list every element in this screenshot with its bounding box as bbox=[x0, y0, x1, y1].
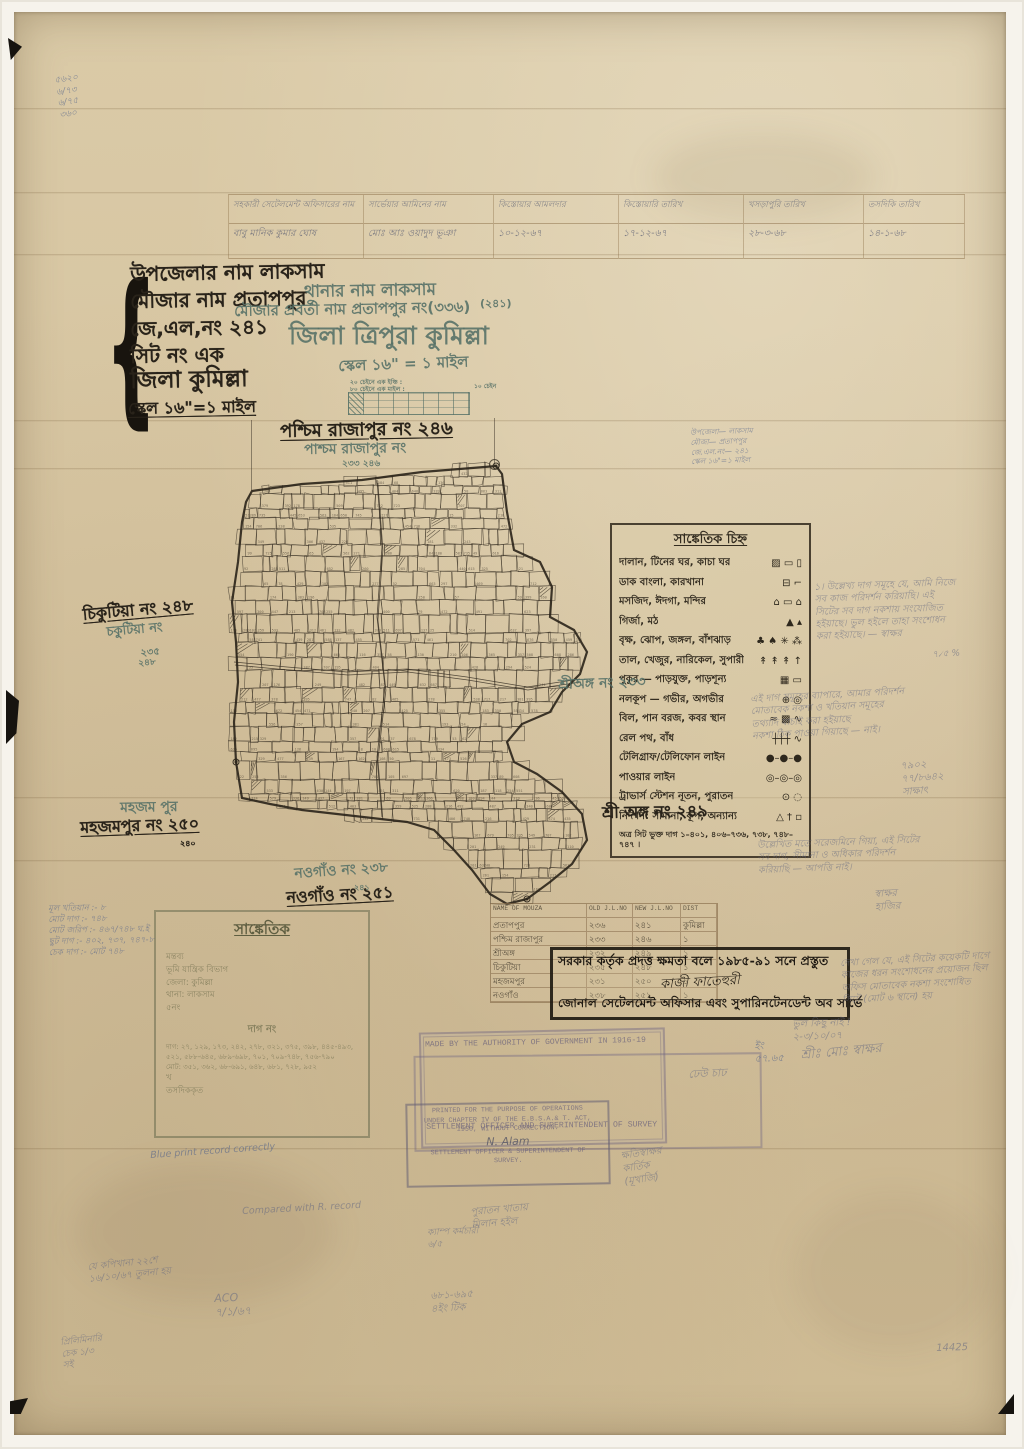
reference-box-dag-numbers: মোট: ৩৫১, ৩৬২, ৬৮-৬৯১, ৬৪৮, ৬৮১, ৭২৮, ৯৫… bbox=[166, 1062, 358, 1072]
legend-row-symbol-icon: ↟ ↟ ↟ ↑ bbox=[759, 656, 802, 667]
pencil-note-line: ৭৴৫ % bbox=[932, 649, 960, 662]
legend-row-symbol-icon: ♣ ♠ ✳ ⁂ bbox=[756, 636, 802, 647]
mouza-table-header: NAME OF MOUZA bbox=[491, 904, 587, 918]
mouza-table-cell: ২৩৬ bbox=[587, 918, 633, 932]
legend-row-symbol-icon: ◎–◎–◎ bbox=[766, 773, 802, 784]
pencil-note-line: ইং bbox=[754, 1039, 784, 1053]
reference-box-line: জেলা: কুমিল্লা bbox=[166, 977, 358, 990]
legend-row-label: তাল, খেজুর, নারিকেল, সুপারী bbox=[619, 653, 744, 670]
mouza-table-header: OLD J.L.NO bbox=[587, 904, 633, 918]
pencil-note: ইং৫৭.৬৫ bbox=[754, 1039, 784, 1066]
pencil-note: ঢেউ চাঢ bbox=[688, 1066, 727, 1082]
mouza-table-cell: ১ bbox=[681, 932, 717, 946]
legend-row-label: দালান, টিনের ঘর, কাচা ঘর bbox=[619, 555, 730, 572]
survey-record-table: সহকারী সেটেলমেন্ট অফিসারের নামসার্ভেয়ার… bbox=[228, 194, 965, 259]
fold-crease bbox=[14, 108, 1006, 110]
pencil-note: স্বাক্ষরহাজির bbox=[874, 887, 901, 914]
map-label: উপজেলার নাম লাকসাম bbox=[130, 260, 325, 285]
legend-row-label: গির্জা, মঠ bbox=[619, 614, 658, 631]
pencil-note-line: ঢেউ চাঢ bbox=[688, 1066, 727, 1082]
scan-background: সহকারী সেটেলমেন্ট অফিসারের নামসার্ভেয়ার… bbox=[2, 2, 1022, 1447]
mouza-table-header: NEW J.L.NO bbox=[633, 904, 681, 918]
survey-table-value: ১৭-১২-৬৭ bbox=[619, 224, 744, 259]
reference-box-dag-label: দাগ নং bbox=[166, 1022, 358, 1039]
legend-row-label: পাওয়ার লাইন bbox=[619, 770, 675, 787]
pencil-note-line: ৪ইং টিক bbox=[431, 1301, 474, 1316]
legend-row: ডাক বাংলা, কারখানা⊟ ⌐ bbox=[619, 575, 802, 592]
legend-row-symbol-icon: ●–●–● bbox=[766, 753, 802, 764]
reference-box-title: সাঙ্কেতিক bbox=[166, 918, 358, 943]
pencil-note-line: ৫৭.৬৫ bbox=[754, 1052, 784, 1066]
legend-row-label: বৃক্ষ, ঝোপ, জঙ্গল, বাঁশঝাড় bbox=[619, 633, 731, 650]
scale-bar bbox=[348, 392, 470, 415]
mouza-table-cell: ২৪৬ bbox=[633, 932, 681, 946]
survey-table-value: মোঃ আঃ ওয়াদুদ ভূঞা bbox=[364, 224, 494, 259]
survey-table-value: ২৮-৩-৬৮ bbox=[744, 224, 864, 259]
pencil-note-line: ৬৮১-৬৯৫ bbox=[430, 1288, 473, 1303]
map-label: মৌজার প্রবর্তী নাম প্রতাপপুর নং(৩৩৬) bbox=[234, 299, 470, 320]
fold-crease bbox=[14, 420, 1006, 422]
mouza-table-cell: ২৪১ bbox=[633, 918, 681, 932]
pencil-note: মূল খতিয়ান :- ৮মোট দাগ :- ৭৪৮মোট জরিপ :… bbox=[48, 902, 154, 959]
reference-box-line: মন্তব্য bbox=[166, 951, 358, 964]
map-label: স্কেল ১৬"=১ মাইল bbox=[128, 398, 256, 418]
legend-row-symbol-icon: △ † ▫ bbox=[776, 812, 802, 823]
pencil-note: এই দাগ সমূহের ব্যাপারে, আমার পরিদর্শনমোত… bbox=[750, 686, 906, 743]
survey-table-header: কিস্তোয়ারি তারিখ bbox=[619, 195, 744, 224]
reference-box-line: তসদিককৃত bbox=[166, 1085, 358, 1098]
survey-table-header: কিস্তোয়ার আমলদার bbox=[494, 195, 619, 224]
legend-row: গির্জা, মঠ▲ ▴ bbox=[619, 614, 802, 631]
map-label: পাশ্চম রাজাপুর নং bbox=[304, 441, 406, 458]
pencil-note-line: ২-৩/১০/০৭ bbox=[792, 1029, 851, 1044]
reprint-stamp: PRINTED FOR THE PURPOSE OF OPERATIONSUND… bbox=[405, 1100, 610, 1188]
pencil-note: ক্ষতিস্বাক্ষরকার্তিক(মূখার্জি) bbox=[620, 1144, 666, 1188]
map-label: ২৩৩ ২৪৬ bbox=[342, 460, 380, 470]
reference-box-body: মন্তব্যভূমি যান্ত্রিক বিভাগজেলা: কুমিল্ল… bbox=[166, 951, 358, 1098]
legend-row-symbol-icon: ⌂ ▭ ⌂ bbox=[773, 597, 802, 608]
reference-box-line: খ bbox=[166, 1072, 358, 1085]
legend-row: দালান, টিনের ঘর, কাচা ঘর▨ ▭ ▯ bbox=[619, 555, 802, 572]
legend-row: মসজিদ, ঈদগা, মন্দির⌂ ▭ ⌂ bbox=[619, 594, 802, 611]
mouza-table-header: DIST bbox=[681, 904, 717, 918]
pencil-note: ৭৴৫ % bbox=[932, 649, 960, 662]
legend-row-symbol-icon: ⊟ ⌐ bbox=[782, 578, 802, 589]
mouza-table-cell: কুমিল্লা bbox=[681, 918, 717, 932]
legend-row-symbol-icon: ▲ ▴ bbox=[786, 617, 802, 628]
legend-row-label: মসজিদ, ঈদগা, মন্দির bbox=[619, 594, 706, 611]
reference-box: সাঙ্কেতিক মন্তব্যভূমি যান্ত্রিক বিভাগজেল… bbox=[154, 910, 370, 1138]
map-label: জিলা কুমিল্লা bbox=[130, 367, 248, 394]
pencil-note: উপজেলা— লাকসামমৌজা— প্রতাপপুরজে.এল.নং— ২… bbox=[690, 426, 754, 467]
legend-title: সাঙ্কেতিক চিহ্ন bbox=[619, 530, 802, 551]
legend-rows: দালান, টিনের ঘর, কাচা ঘর▨ ▭ ▯ডাক বাংলা, … bbox=[619, 555, 802, 826]
pencil-note: ভুল কিছু নাই !২-৩/১০/০৭ bbox=[792, 1016, 851, 1044]
legend-row: বৃক্ষ, ঝোপ, জঙ্গল, বাঁশঝাড়♣ ♠ ✳ ⁂ bbox=[619, 633, 802, 650]
map-label: পশ্চিম রাজাপুর নং ২৪৬ bbox=[280, 419, 453, 442]
pencil-note: উল্লেখিত মতে সরেজমিনে গিয়া, এই সিটেরসব … bbox=[757, 834, 921, 877]
legend-row: টেলিগ্রাফ/টেলিফোন লাইন●–●–● bbox=[619, 750, 802, 767]
legend-row: পাওয়ার লাইন◎–◎–◎ bbox=[619, 770, 802, 787]
mouza-table-cell: পশ্চিম রাজাপুর bbox=[491, 932, 587, 946]
mouza-table-cell: ২৩৩ bbox=[587, 932, 633, 946]
pencil-note: পুরাতন খাতায়মিলান হইল bbox=[470, 1201, 530, 1232]
survey-table-value: বাবু মানিক কুমার ঘোষ bbox=[229, 224, 364, 259]
legend-row: পুকুর — পাড়যুক্ত, পাড়শূন্য▦ ▭ bbox=[619, 672, 802, 689]
pencil-note-line: হাজির bbox=[875, 900, 901, 914]
legend-row: তাল, খেজুর, নারিকেল, সুপারী↟ ↟ ↟ ↑ bbox=[619, 653, 802, 670]
map-label: ২৪০ bbox=[180, 840, 196, 849]
reference-box-line: ভূমি যান্ত্রিক বিভাগ bbox=[166, 964, 358, 977]
map-label: শ্রী অঙ্গ নং ২৪৯ bbox=[602, 802, 708, 821]
cadastral-map-canvas bbox=[227, 457, 607, 912]
survey-table-header: সার্ভেয়ার আমিনের নাম bbox=[364, 195, 494, 224]
pencil-note-line: চেক দাগ :- মোট ৭৪৮ bbox=[49, 946, 155, 959]
pencil-note: ১। উল্লেখ্য দাগ সমূহে যে, আমি নিজেসব কাজ… bbox=[814, 577, 957, 644]
legend-row-label: ডাক বাংলা, কারখানা bbox=[619, 575, 704, 592]
legend-row-label: টেলিগ্রাফ/টেলিফোন লাইন bbox=[619, 750, 725, 767]
map-label: ২৪৮ bbox=[138, 658, 156, 669]
mouza-table-cell: প্রতাপপুর bbox=[491, 918, 587, 932]
map-label: ১০ চেইন bbox=[474, 384, 496, 391]
pencil-note: 14425 bbox=[936, 1341, 968, 1355]
survey-table-header: খসড়াপুরি তারিখ bbox=[744, 195, 864, 224]
survey-table-header: তসদিকি তারিখ bbox=[864, 195, 965, 224]
map-label: জিলা ত্রিপুরা কুমিল্লা bbox=[289, 322, 489, 350]
pencil-note-line: ভুল কিছু নাই ! bbox=[792, 1016, 851, 1031]
survey-table-value: ১০-১২-৬৭ bbox=[494, 224, 619, 259]
legend-row-symbol-icon: ▦ ▭ bbox=[780, 675, 802, 686]
scanned-mouza-map-page: { "colors":{"paper":"#d8c6a2","ink":"#29… bbox=[0, 0, 1024, 1449]
survey-table-value: ১৪-১-৬৮ bbox=[864, 224, 965, 259]
legend-row-symbol-icon: ▨ ▭ ▯ bbox=[771, 558, 802, 569]
map-label: (২৪১) bbox=[480, 298, 511, 310]
reference-box-dag-numbers: দাগ: ২৭, ১২৯, ১৭৩, ২৪২, ২৭৮, ৩২১, ৩৭৫, ৩… bbox=[166, 1042, 358, 1062]
pencil-note: ACO৭/১/৬৭ bbox=[214, 1290, 251, 1320]
pencil-note: ৬৮১-৬৯৫৪ইং টিক bbox=[430, 1288, 474, 1316]
legend-row-label: বিল, পান বরজ, কবর স্থান bbox=[619, 711, 726, 728]
map-label: সিট নং এক bbox=[130, 343, 224, 367]
authority-stamp: সরকার কর্তৃক প্রদত্ত ক্ষমতা বলে ১৯৮৫-৯১ … bbox=[550, 947, 850, 1020]
legend-row-label: নলকূপ — গভীর, অগভীর bbox=[619, 692, 724, 709]
reference-box-line: থানা: লাকসাম bbox=[166, 989, 358, 1002]
pencil-note-line: 14425 bbox=[936, 1341, 968, 1355]
scale-bar-hatch bbox=[349, 393, 364, 414]
reference-box-line: ৫নং bbox=[166, 1002, 358, 1015]
map-label: মহজমপুর নং ২৫০ bbox=[80, 815, 199, 837]
map-label: শ্রীঅঙ্গ নং ২৩৩ bbox=[558, 675, 646, 693]
paper-stain bbox=[794, 1192, 994, 1352]
map-label: ৮০ চেইনে এক মাইল : bbox=[350, 387, 405, 394]
government-authority-stamp-text: MADE BY THE AUTHORITY OF GOVERNMENT IN 1… bbox=[425, 1036, 659, 1050]
survey-table-header: সহকারী সেটেলমেন্ট অফিসারের নাম bbox=[229, 195, 364, 224]
pencil-note-line: ৭/১/৬৭ bbox=[215, 1304, 252, 1320]
legend-row-label: রেল পথ, বাঁধ bbox=[619, 731, 674, 748]
pencil-note: দেখা গেল যে, এই সিটের কয়েকটি দাগেকাজের … bbox=[840, 950, 992, 1007]
pencil-note: ৭৯০২৭৭/৮৬৪২সাক্ষাৎ bbox=[900, 757, 945, 799]
pencil-note: ক্যাম্প কর্মচারী৬/৫ bbox=[427, 1226, 479, 1251]
pencil-note-line: ক্যাম্প কর্মচারী bbox=[427, 1226, 478, 1239]
legend-row-symbol-icon: ⊙ ◌ bbox=[782, 792, 802, 803]
pencil-note-line: ৬/৫ bbox=[427, 1238, 478, 1251]
pencil-note: প্রিলিমিনারিচেক ১/৩সই bbox=[60, 1334, 105, 1373]
